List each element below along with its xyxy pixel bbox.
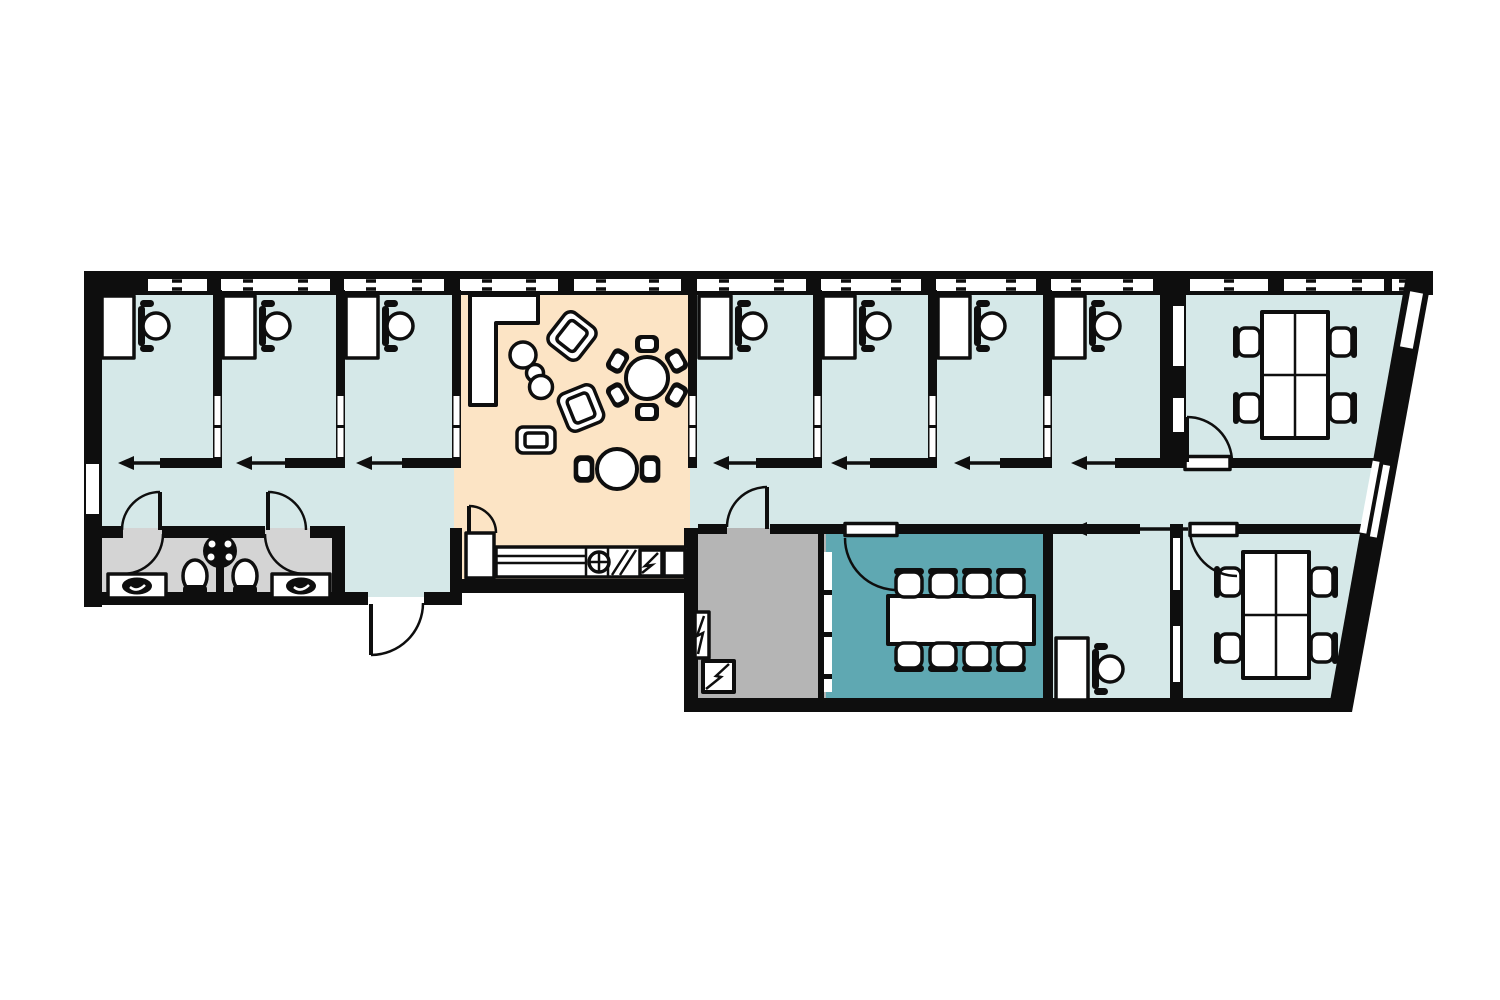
floor-plan-page <box>0 0 1500 1000</box>
fridge-icon <box>664 550 685 576</box>
entrance-door <box>371 603 423 655</box>
left-wall-window <box>86 464 99 514</box>
meeting-glass-wall <box>824 552 832 692</box>
water-heater-icon <box>703 661 734 692</box>
kitchen-counter <box>496 547 688 577</box>
sink-counter <box>272 574 330 598</box>
cooktop-icon <box>589 552 609 572</box>
pouf <box>530 376 553 399</box>
corridor-lower-wall <box>698 522 1362 536</box>
toilet <box>233 560 257 596</box>
armchair <box>517 427 555 453</box>
floor-plan-svg <box>0 0 1500 1000</box>
dishwasher-icon <box>640 550 662 576</box>
tall-cabinet <box>466 533 494 578</box>
electrical-panel-icon <box>695 612 709 658</box>
conference-table <box>888 596 1034 644</box>
sink-counter <box>108 574 166 598</box>
toilet <box>183 560 207 596</box>
